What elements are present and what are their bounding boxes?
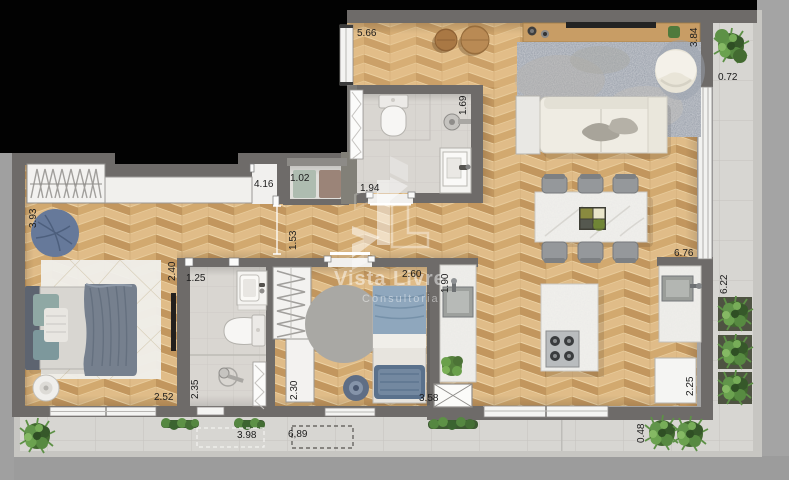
svg-text:2.60: 2.60 <box>402 269 422 280</box>
svg-text:Consultoria: Consultoria <box>362 293 440 305</box>
svg-text:2.25: 2.25 <box>685 376 696 396</box>
svg-text:3.98: 3.98 <box>237 430 257 441</box>
svg-text:3.58: 3.58 <box>419 393 439 404</box>
svg-text:1.69: 1.69 <box>458 95 469 115</box>
svg-text:1.90: 1.90 <box>440 273 451 293</box>
svg-text:6.76: 6.76 <box>674 248 694 259</box>
svg-text:4.16: 4.16 <box>254 179 274 190</box>
svg-text:0.48: 0.48 <box>636 423 647 443</box>
svg-text:2.30: 2.30 <box>289 380 300 400</box>
svg-text:1.02: 1.02 <box>290 173 310 184</box>
svg-text:3.84: 3.84 <box>689 27 700 47</box>
svg-text:2.35: 2.35 <box>190 379 201 399</box>
svg-text:1.25: 1.25 <box>186 273 206 284</box>
svg-text:5.66: 5.66 <box>357 28 377 39</box>
svg-text:1.53: 1.53 <box>288 230 299 250</box>
svg-text:Vista Livre: Vista Livre <box>334 268 446 290</box>
svg-text:2.52: 2.52 <box>154 392 174 403</box>
svg-text:3.93: 3.93 <box>28 208 39 228</box>
svg-text:0.72: 0.72 <box>718 72 738 83</box>
svg-text:2.40: 2.40 <box>167 261 178 281</box>
svg-text:1.94: 1.94 <box>360 183 380 194</box>
svg-text:6.22: 6.22 <box>719 274 730 294</box>
svg-text:6,89: 6,89 <box>288 429 308 440</box>
